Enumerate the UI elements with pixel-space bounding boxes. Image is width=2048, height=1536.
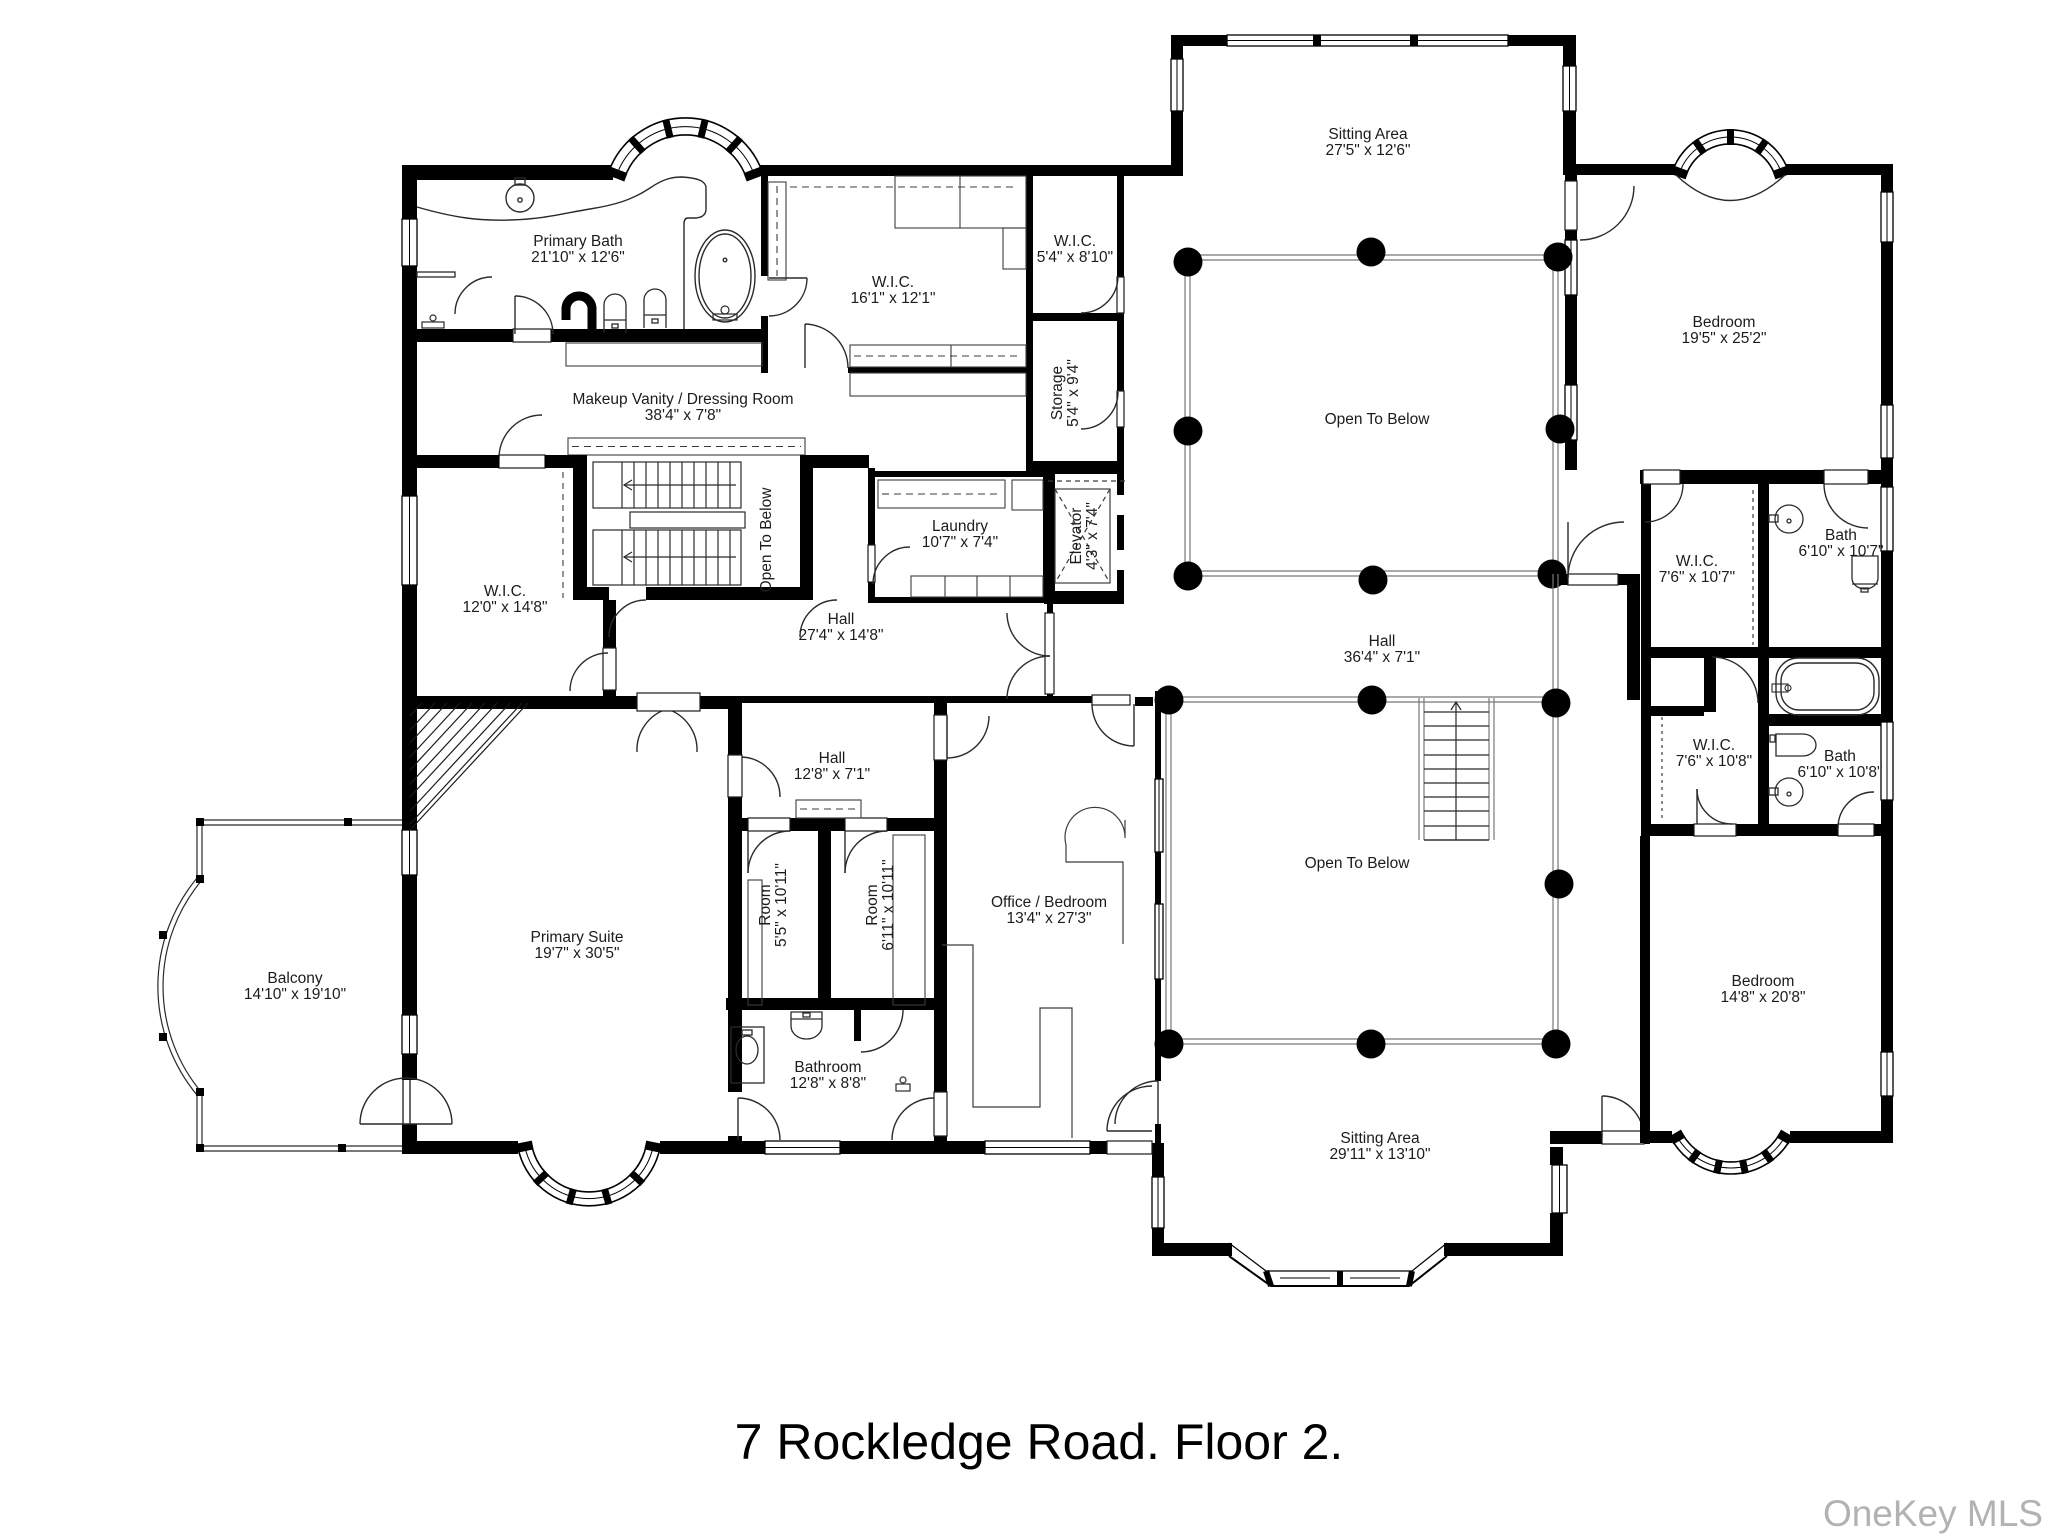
svg-text:5'4" x 8'10": 5'4" x 8'10"	[1037, 249, 1113, 266]
svg-text:Bathroom: Bathroom	[794, 1059, 861, 1076]
svg-text:W.I.C.: W.I.C.	[1054, 233, 1096, 250]
svg-text:19'7" x 30'5": 19'7" x 30'5"	[534, 945, 619, 962]
svg-text:Bath: Bath	[1824, 748, 1856, 765]
svg-text:Office / Bedroom: Office / Bedroom	[991, 894, 1107, 911]
svg-text:W.I.C.: W.I.C.	[1693, 737, 1735, 754]
svg-text:29'11" x 13'10": 29'11" x 13'10"	[1329, 1146, 1430, 1163]
svg-text:10'7" x 7'4": 10'7" x 7'4"	[922, 534, 998, 551]
svg-text:14'8" x 20'8": 14'8" x 20'8"	[1720, 989, 1805, 1006]
svg-text:Laundry: Laundry	[932, 518, 988, 535]
svg-text:13'4" x 27'3": 13'4" x 27'3"	[1006, 910, 1091, 927]
svg-text:5'4" x 9'4": 5'4" x 9'4"	[1065, 359, 1082, 427]
svg-text:Hall: Hall	[819, 750, 846, 767]
svg-text:Open To Below: Open To Below	[1325, 411, 1431, 428]
svg-text:W.I.C.: W.I.C.	[484, 583, 526, 600]
svg-text:Room: Room	[864, 884, 881, 925]
svg-text:Open To Below: Open To Below	[758, 487, 775, 593]
svg-text:OneKey MLS: OneKey MLS	[1823, 1493, 2043, 1534]
svg-text:36'4" x 7'1": 36'4" x 7'1"	[1344, 649, 1420, 666]
svg-text:38'4" x 7'8": 38'4" x 7'8"	[645, 407, 721, 424]
svg-text:6'10" x 10'8": 6'10" x 10'8"	[1797, 764, 1882, 781]
svg-text:Open To Below: Open To Below	[1305, 855, 1411, 872]
svg-text:21'10" x 12'6": 21'10" x 12'6"	[531, 249, 625, 266]
svg-text:Elevator: Elevator	[1068, 508, 1085, 565]
svg-text:Balcony: Balcony	[267, 970, 322, 987]
svg-text:6'10" x 10'7": 6'10" x 10'7"	[1798, 543, 1883, 560]
svg-text:Hall: Hall	[1369, 633, 1396, 650]
svg-text:Storage: Storage	[1049, 366, 1066, 420]
svg-text:7'6" x 10'8": 7'6" x 10'8"	[1676, 753, 1752, 770]
svg-text:5'5" x 10'11": 5'5" x 10'11"	[773, 863, 790, 947]
svg-text:Hall: Hall	[828, 611, 855, 628]
svg-text:27'4" x 14'8": 27'4" x 14'8"	[798, 627, 883, 644]
svg-text:12'8" x 7'1": 12'8" x 7'1"	[794, 766, 870, 783]
svg-text:Primary Suite: Primary Suite	[530, 929, 623, 946]
svg-text:6'11" x 10'11": 6'11" x 10'11"	[880, 859, 897, 950]
svg-text:4'3" x 7'4": 4'3" x 7'4"	[1084, 502, 1101, 570]
svg-text:W.I.C.: W.I.C.	[1676, 553, 1718, 570]
svg-text:Sitting Area: Sitting Area	[1328, 126, 1408, 143]
svg-text:Room: Room	[757, 884, 774, 925]
svg-text:Bath: Bath	[1825, 527, 1857, 544]
svg-text:14'10" x 19'10": 14'10" x 19'10"	[244, 986, 346, 1003]
svg-text:Primary Bath: Primary Bath	[533, 233, 623, 250]
svg-text:Sitting Area: Sitting Area	[1340, 1130, 1420, 1147]
svg-text:Bedroom: Bedroom	[1732, 973, 1795, 990]
svg-text:12'0" x 14'8": 12'0" x 14'8"	[462, 599, 547, 616]
svg-text:Bedroom: Bedroom	[1693, 314, 1756, 331]
svg-text:W.I.C.: W.I.C.	[872, 274, 914, 291]
svg-text:12'8" x 8'8": 12'8" x 8'8"	[790, 1075, 866, 1092]
svg-text:7'6" x 10'7": 7'6" x 10'7"	[1659, 569, 1735, 586]
svg-text:16'1" x 12'1": 16'1" x 12'1"	[850, 290, 935, 307]
svg-text:19'5" x 25'2": 19'5" x 25'2"	[1681, 330, 1766, 347]
svg-text:Makeup Vanity / Dressing Room: Makeup Vanity / Dressing Room	[572, 391, 793, 408]
svg-text:27'5" x 12'6": 27'5" x 12'6"	[1325, 142, 1410, 159]
svg-text:7 Rockledge Road. Floor 2.: 7 Rockledge Road. Floor 2.	[735, 1414, 1344, 1470]
